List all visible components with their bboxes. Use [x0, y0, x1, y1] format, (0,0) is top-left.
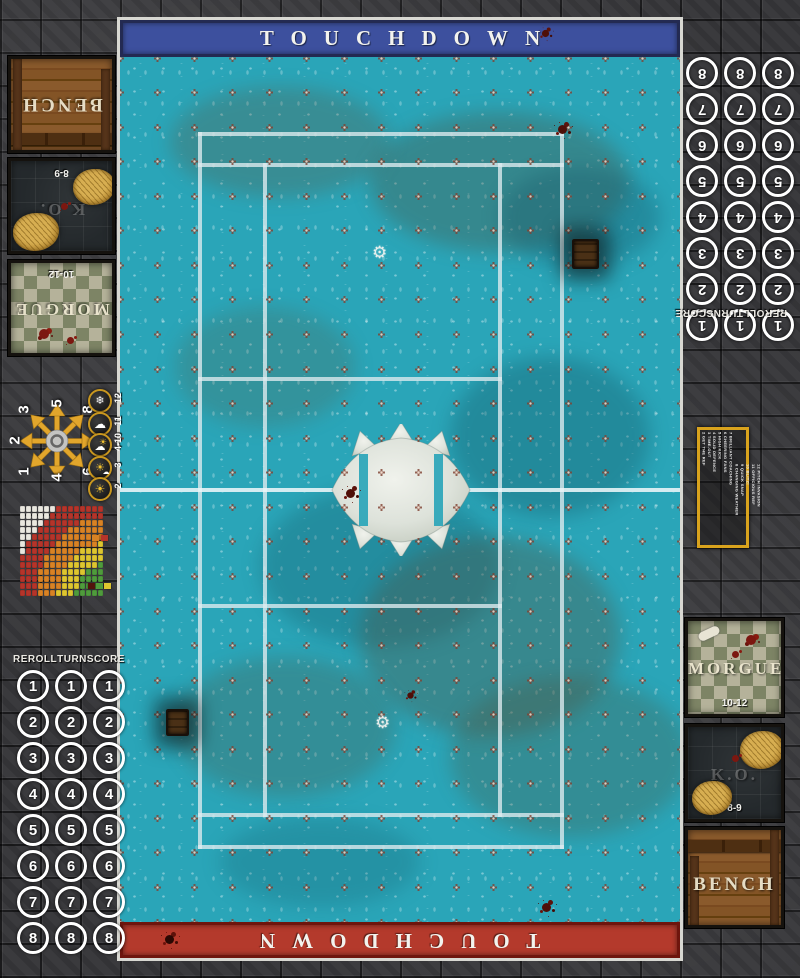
track-number-circle: 8: [93, 922, 125, 954]
grid-cross-marker: [415, 538, 422, 545]
score-track-row: 888: [686, 57, 794, 89]
grid-cross-marker: [154, 331, 161, 338]
track-number-circle: 7: [762, 93, 794, 125]
grid-cross-marker: [378, 57, 385, 62]
grid-cross-marker: [120, 608, 124, 615]
out-of-range-cell: [26, 527, 31, 533]
long-bomb-cell: [20, 576, 25, 582]
grid-cross-marker: [602, 746, 609, 753]
long-bomb-cell: [74, 506, 79, 512]
grid-cross-marker: [602, 57, 609, 62]
grid-cross-marker: [266, 331, 273, 338]
long-pass-cell: [56, 541, 61, 547]
grid-cross-marker: [602, 124, 609, 131]
track-number-circle: 3: [724, 237, 756, 269]
long-bomb-cell: [26, 541, 31, 547]
grid-cross-marker: [266, 158, 273, 165]
grid-cross-marker: [303, 227, 310, 234]
track-number-circle: 6: [762, 129, 794, 161]
grid-cross-marker: [565, 573, 572, 580]
grid-cross-marker: [490, 124, 497, 131]
grid-cross-marker: [415, 504, 422, 511]
grid-cross-marker: [639, 677, 646, 684]
track-number-label: 7: [736, 101, 744, 118]
trapdoor-crate: [166, 709, 189, 736]
stain: [220, 817, 420, 907]
grid-cross-marker: [602, 608, 609, 615]
track-number-label: 4: [736, 209, 744, 226]
weather-value: 4-10: [113, 430, 123, 454]
kickoff-entry: 11 OFFICIOUS REF: [751, 464, 755, 543]
long-bomb-cell: [44, 548, 49, 554]
long-bomb-cell: [38, 527, 43, 533]
score-track-row: 111: [17, 670, 125, 702]
grid-cross-marker: [415, 296, 422, 303]
grid-cross-marker: [453, 366, 460, 373]
grid-cross-marker: [229, 538, 236, 545]
grid-cross-marker: [191, 642, 198, 649]
grid-cross-marker: [490, 400, 497, 407]
grid-cross-marker: [154, 158, 161, 165]
kickoff-entry: 6 CHEERING FANS: [723, 432, 727, 543]
track-number-label: 1: [105, 678, 113, 695]
long-pass-cell: [86, 520, 91, 526]
sun-icon: ☀: [88, 477, 112, 501]
grid-cross-marker: [303, 608, 310, 615]
long-bomb-cell: [50, 541, 55, 547]
grid-cross-marker: [378, 124, 385, 131]
grid-cross-marker: [191, 262, 198, 269]
long-pass-cell: [74, 541, 79, 547]
blood-bowl-game-mat: TOUCHDOWN: [0, 0, 800, 978]
short-pass-cell: [74, 562, 79, 568]
grid-cross-marker: [120, 57, 124, 62]
grid-cross-marker: [490, 227, 497, 234]
playing-field: ⚙ ⚙: [120, 57, 680, 922]
grid-cross-marker: [303, 193, 310, 200]
grid-cross-marker: [378, 158, 385, 165]
kickoff-entry: 5 HIGH KICK: [717, 432, 721, 543]
scatter-number-4: 4: [49, 470, 66, 486]
track-number-label: 3: [736, 245, 744, 262]
grid-cross-marker: [639, 262, 646, 269]
grid-cross-marker: [341, 711, 348, 718]
long-bomb-cell: [38, 534, 43, 540]
long-bomb-cell: [98, 506, 103, 512]
grid-cross-marker: [527, 124, 534, 131]
grid-cross-marker: [565, 642, 572, 649]
out-of-range-cell: [20, 541, 25, 547]
grid-cross-marker: [303, 331, 310, 338]
long-bomb-cell: [50, 520, 55, 526]
score-track-right: 888777666555444333222111: [686, 57, 794, 341]
grid-cross-marker: [303, 57, 310, 62]
grid-cross-marker: [341, 331, 348, 338]
kickoff-entry: 7 BRILLIANT COACHING: [728, 432, 732, 543]
track-number-label: 8: [67, 930, 75, 947]
long-bomb-cell: [50, 527, 55, 533]
track-number-label: 3: [774, 245, 782, 262]
track-number-label: 8: [736, 65, 744, 82]
grid-cross-marker: [639, 815, 646, 822]
grid-cross-marker: [639, 504, 646, 511]
grid-cross-marker: [527, 780, 534, 787]
track-number-label: 4: [29, 786, 37, 803]
long-pass-cell: [38, 583, 43, 589]
long-bomb-cell: [20, 583, 25, 589]
grid-cross-marker: [378, 608, 385, 615]
long-pass-cell: [98, 520, 103, 526]
grid-cross-marker: [602, 158, 609, 165]
track-number-circle: 8: [17, 922, 49, 954]
grid-cross-marker: [453, 711, 460, 718]
track-number-circle: 4: [724, 201, 756, 233]
track-number-circle: 6: [686, 129, 718, 161]
long-pass-cell: [38, 569, 43, 575]
grid-cross-marker: [191, 849, 198, 856]
long-bomb-cell: [26, 569, 31, 575]
track-number-label: 7: [29, 894, 37, 911]
grid-cross-marker: [453, 57, 460, 62]
grid-cross-marker: [677, 331, 681, 338]
long-bomb-cell: [50, 513, 55, 519]
grid-cross-marker: [677, 573, 681, 580]
grid-cross-marker: [341, 849, 348, 856]
long-pass-cell: [62, 562, 67, 568]
long-pass-cell: [80, 541, 85, 547]
score-track-row: 888: [17, 922, 125, 954]
grid-cross-marker: [229, 262, 236, 269]
grid-cross-marker: [266, 573, 273, 580]
long-pass-cell: [50, 555, 55, 561]
grid-cross-marker: [639, 89, 646, 96]
grid-cross-marker: [677, 400, 681, 407]
grid-cross-marker: [565, 849, 572, 856]
track-number-label: 6: [105, 858, 113, 875]
grid-cross-marker: [415, 158, 422, 165]
grid-cross-marker: [266, 711, 273, 718]
grid-cross-marker: [602, 469, 609, 476]
grid-cross-marker: [677, 849, 681, 856]
grid-cross-marker: [490, 158, 497, 165]
legend-swatch: [88, 583, 95, 589]
grid-cross-marker: [527, 711, 534, 718]
grid-cross-marker: [303, 296, 310, 303]
track-number-label: 5: [105, 822, 113, 839]
track-number-circle: 4: [55, 778, 87, 810]
grid-cross-marker: [602, 849, 609, 856]
short-pass-cell: [98, 555, 103, 561]
long-pass-cell: [80, 520, 85, 526]
bench-label: BENCH: [688, 874, 781, 896]
grid-cross-marker: [677, 677, 681, 684]
score-track-header-left: REROLL TURN SCORE: [13, 654, 116, 665]
quick-pass-cell: [98, 576, 103, 582]
short-pass-cell: [74, 576, 79, 582]
short-pass-legend-swatch: [104, 583, 111, 589]
grid-cross-marker: [341, 124, 348, 131]
grid-cross-marker: [229, 746, 236, 753]
grid-cross-marker: [677, 57, 681, 62]
grid-cross-marker: [453, 262, 460, 269]
grid-cross-marker: [677, 538, 681, 545]
short-pass-cell: [86, 562, 91, 568]
grid-cross-marker: [490, 780, 497, 787]
court-line: [198, 377, 502, 381]
long-pass-cell: [98, 527, 103, 533]
grid-cross-marker: [677, 780, 681, 787]
grid-cross-marker: [415, 642, 422, 649]
long-pass-cell: [38, 590, 43, 596]
track-number-circle: 7: [686, 93, 718, 125]
track-number-circle: 3: [17, 742, 49, 774]
grid-cross-marker: [229, 573, 236, 580]
grid-cross-marker: [229, 227, 236, 234]
long-bomb-cell: [32, 590, 37, 596]
long-bomb-cell: [26, 583, 31, 589]
grid-cross-marker: [415, 193, 422, 200]
grid-cross-marker: [266, 124, 273, 131]
grid-cross-marker: [639, 746, 646, 753]
grid-cross-marker: [527, 884, 534, 891]
grid-cross-marker: [565, 538, 572, 545]
grid-cross-marker: [602, 400, 609, 407]
short-pass-cell: [80, 555, 85, 561]
track-number-label: 3: [698, 245, 706, 262]
grid-cross-marker: [266, 262, 273, 269]
grid-cross-marker: [120, 296, 124, 303]
track-number-circle: 8: [762, 57, 794, 89]
short-pass-cell: [98, 548, 103, 554]
grid-cross-marker: [154, 573, 161, 580]
grid-cross-marker: [229, 849, 236, 856]
long-bomb-cell: [32, 534, 37, 540]
kickoff-entry: 2 GET THE REF: [701, 432, 705, 543]
wood-beam: [688, 840, 781, 852]
grid-cross-marker: [229, 89, 236, 96]
grid-cross-marker: [341, 57, 348, 62]
quick-pass-cell: [98, 562, 103, 568]
grid-cross-marker: [266, 780, 273, 787]
track-number-circle: 7: [17, 886, 49, 918]
track-number-circle: 2: [762, 273, 794, 305]
grid-cross-marker: [154, 435, 161, 442]
track-number-label: 1: [736, 317, 744, 334]
grid-cross-marker: [378, 677, 385, 684]
long-pass-cell: [44, 569, 49, 575]
out-of-range-cell: [38, 506, 43, 512]
blizzard-icon: ❄: [88, 389, 112, 413]
short-pass-cell: [74, 555, 79, 561]
kickoff-entry: 10 BLITZ!: [745, 464, 749, 543]
track-number-label: 6: [67, 858, 75, 875]
short-pass-cell: [92, 548, 97, 554]
long-bomb-cell: [56, 506, 61, 512]
scatter-template: 35827146: [16, 399, 98, 483]
short-pass-cell: [86, 548, 91, 554]
stain: [450, 357, 650, 517]
grid-cross-marker: [154, 780, 161, 787]
blood-splatter: [732, 755, 739, 762]
grid-cross-marker: [191, 400, 198, 407]
grid-cross-marker: [453, 884, 460, 891]
grid-cross-marker: [191, 469, 198, 476]
grid-cross-marker: [527, 608, 534, 615]
grid-cross-marker: [639, 193, 646, 200]
out-of-range-cell: [26, 506, 31, 512]
grid-cross-marker: [229, 469, 236, 476]
score-track-header-right: REROLL TURN SCORE: [684, 307, 787, 318]
grid-cross-marker: [490, 538, 497, 545]
grid-cross-marker: [490, 711, 497, 718]
long-bomb-cell: [32, 562, 37, 568]
long-bomb-legend-swatch: [101, 535, 108, 541]
grid-cross-marker: [191, 504, 198, 511]
grid-cross-marker: [229, 296, 236, 303]
grid-cross-marker: [602, 711, 609, 718]
grid-cross-marker: [303, 504, 310, 511]
grid-cross-marker: [341, 884, 348, 891]
long-pass-cell: [50, 569, 55, 575]
quick-pass-cell: [74, 590, 79, 596]
long-pass-cell: [68, 555, 73, 561]
stain: [170, 87, 390, 197]
grid-cross-marker: [639, 124, 646, 131]
grid-cross-marker: [303, 435, 310, 442]
grid-cross-marker: [341, 469, 348, 476]
track-number-circle: 5: [93, 814, 125, 846]
grid-cross-marker: [639, 435, 646, 442]
track-number-circle: 2: [93, 706, 125, 738]
short-pass-cell: [86, 555, 91, 561]
long-bomb-cell: [86, 506, 91, 512]
grid-cross-marker: [266, 193, 273, 200]
grid-cross-marker: [303, 642, 310, 649]
grid-cross-marker: [490, 262, 497, 269]
quick-pass-cell: [92, 576, 97, 582]
grid-cross-marker: [191, 746, 198, 753]
out-of-range-cell: [38, 520, 43, 526]
long-pass-cell: [80, 527, 85, 533]
grid-cross-marker: [415, 435, 422, 442]
long-bomb-cell: [92, 506, 97, 512]
grid-cross-marker: [527, 573, 534, 580]
score-track-row: 444: [17, 778, 125, 810]
quick-pass-cell: [80, 590, 85, 596]
long-pass-cell: [50, 583, 55, 589]
grid-cross-marker: [677, 124, 681, 131]
grid-cross-marker: [565, 366, 572, 373]
long-bomb-cell: [20, 555, 25, 561]
score-track-row: 777: [17, 886, 125, 918]
grid-cross-marker: [639, 780, 646, 787]
grid-cross-marker: [154, 677, 161, 684]
track-number-label: 8: [774, 65, 782, 82]
track-number-circle: 5: [762, 165, 794, 197]
out-of-range-cell: [44, 513, 49, 519]
track-number-circle: 5: [55, 814, 87, 846]
track-number-label: 6: [736, 137, 744, 154]
short-pass-cell: [68, 562, 73, 568]
grid-cross-marker: [378, 296, 385, 303]
grid-cross-marker: [415, 57, 422, 62]
grid-cross-marker: [120, 331, 124, 338]
long-pass-cell: [56, 562, 61, 568]
long-pass-cell: [62, 548, 67, 554]
grid-cross-marker: [266, 504, 273, 511]
long-bomb-cell: [56, 513, 61, 519]
dugout-morgue-right: MORGUE 10-12: [685, 618, 784, 717]
short-pass-cell: [62, 569, 67, 575]
track-number-label: 3: [67, 750, 75, 767]
long-pass-cell: [38, 576, 43, 582]
grid-cross-marker: [120, 124, 124, 131]
grid-cross-marker: [490, 435, 497, 442]
blood-splatter: [61, 203, 68, 210]
grid-cross-marker: [453, 608, 460, 615]
track-number-circle: 5: [686, 165, 718, 197]
grid-cross-marker: [154, 884, 161, 891]
grid-cross-marker: [229, 400, 236, 407]
track-number-label: 2: [29, 714, 37, 731]
grid-cross-marker: [341, 400, 348, 407]
long-pass-cell: [56, 555, 61, 561]
short-pass-cell: [74, 569, 79, 575]
out-of-range-cell: [20, 548, 25, 554]
track-number-label: 5: [67, 822, 75, 839]
grid-cross-marker: [154, 504, 161, 511]
short-pass-cell: [56, 590, 61, 596]
grid-cross-marker: [565, 815, 572, 822]
long-pass-cell: [74, 534, 79, 540]
grid-cross-marker: [378, 227, 385, 234]
out-of-range-cell: [26, 534, 31, 540]
grid-cross-marker: [154, 89, 161, 96]
long-pass-cell: [50, 590, 55, 596]
grid-cross-marker: [453, 435, 460, 442]
grid-cross-marker: [341, 435, 348, 442]
grid-cross-marker: [229, 642, 236, 649]
grid-cross-marker: [191, 158, 198, 165]
kickoff-entry: 3 TIME-OUT: [706, 432, 710, 543]
grid-cross-marker: [639, 849, 646, 856]
out-of-range-cell: [26, 513, 31, 519]
track-number-label: 5: [29, 822, 37, 839]
quick-pass-cell: [86, 576, 91, 582]
grid-cross-marker: [378, 815, 385, 822]
grid-cross-marker: [527, 366, 534, 373]
grid-cross-marker: [453, 573, 460, 580]
long-pass-cell: [44, 576, 49, 582]
weather-glyph: ☁: [90, 437, 110, 457]
track-number-circle: 1: [17, 670, 49, 702]
out-of-range-cell: [26, 520, 31, 526]
track-number-circle: 6: [55, 850, 87, 882]
long-bomb-cell: [20, 590, 25, 596]
grid-cross-marker: [154, 538, 161, 545]
track-number-label: 1: [29, 678, 37, 695]
long-bomb-cell: [32, 583, 37, 589]
grid-cross-marker: [191, 780, 198, 787]
grid-cross-marker: [453, 227, 460, 234]
grid-cross-marker: [565, 262, 572, 269]
grid-cross-marker: [490, 815, 497, 822]
track-number-circle: 8: [686, 57, 718, 89]
grid-cross-marker: [266, 296, 273, 303]
long-bomb-cell: [32, 548, 37, 554]
grid-cross-marker: [602, 815, 609, 822]
grid-cross-marker: [639, 331, 646, 338]
